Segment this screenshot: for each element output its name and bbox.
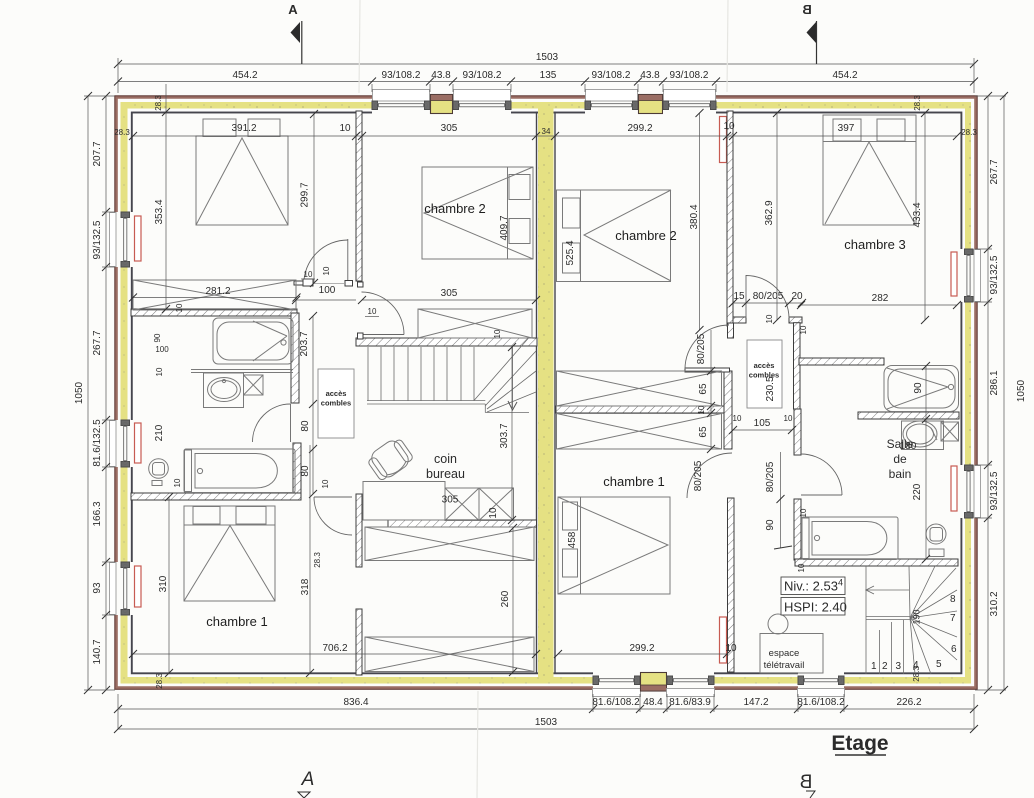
- svg-text:362.9: 362.9: [764, 200, 775, 225]
- svg-text:706.2: 706.2: [322, 643, 347, 654]
- svg-text:454.2: 454.2: [232, 70, 257, 81]
- svg-text:299.2: 299.2: [627, 123, 652, 134]
- svg-text:80: 80: [300, 420, 311, 432]
- svg-text:HSPI: 2.40: HSPI: 2.40: [784, 600, 847, 615]
- svg-text:1050: 1050: [74, 381, 85, 404]
- svg-text:10: 10: [725, 643, 737, 654]
- svg-text:100: 100: [155, 345, 169, 354]
- svg-text:93/108.2: 93/108.2: [382, 70, 421, 81]
- svg-text:80: 80: [300, 465, 311, 477]
- svg-text:90: 90: [153, 333, 162, 342]
- svg-text:espace: espace: [769, 648, 800, 659]
- svg-text:282: 282: [872, 293, 889, 304]
- svg-text:43.8: 43.8: [431, 70, 451, 81]
- svg-text:43.8: 43.8: [640, 70, 660, 81]
- svg-text:267.7: 267.7: [989, 159, 1000, 184]
- svg-text:81.6/83.9: 81.6/83.9: [669, 697, 711, 708]
- svg-text:10: 10: [799, 325, 808, 334]
- svg-text:28.3: 28.3: [155, 673, 164, 689]
- svg-text:65: 65: [698, 426, 709, 438]
- svg-text:2: 2: [882, 661, 888, 672]
- svg-text:190: 190: [912, 609, 922, 624]
- svg-text:210: 210: [154, 424, 165, 441]
- svg-text:65: 65: [698, 383, 709, 395]
- svg-text:80/205: 80/205: [765, 461, 776, 492]
- svg-text:458: 458: [567, 531, 578, 548]
- svg-text:3: 3: [896, 661, 902, 672]
- svg-text:140.7: 140.7: [92, 639, 103, 664]
- svg-text:105: 105: [754, 418, 771, 429]
- svg-text:combles: combles: [321, 399, 351, 408]
- svg-text:147.2: 147.2: [743, 697, 768, 708]
- svg-text:80/205: 80/205: [693, 460, 704, 491]
- svg-text:6: 6: [951, 644, 957, 655]
- svg-text:1503: 1503: [536, 52, 559, 63]
- svg-text:305: 305: [441, 123, 458, 134]
- svg-text:81.6/108.2: 81.6/108.2: [797, 697, 845, 708]
- svg-text:accès: accès: [754, 361, 775, 370]
- svg-text:305: 305: [441, 288, 458, 299]
- svg-text:10: 10: [304, 270, 313, 279]
- svg-text:chambre 2: chambre 2: [615, 228, 676, 243]
- svg-text:93/108.2: 93/108.2: [463, 70, 502, 81]
- svg-text:accès: accès: [326, 389, 347, 398]
- svg-text:chambre 1: chambre 1: [206, 614, 267, 629]
- svg-text:34: 34: [542, 127, 551, 136]
- svg-text:10: 10: [493, 329, 502, 338]
- svg-text:525.4: 525.4: [565, 240, 576, 265]
- svg-text:1: 1: [871, 661, 877, 672]
- svg-text:chambre 2: chambre 2: [424, 201, 485, 216]
- svg-text:93/108.2: 93/108.2: [670, 70, 709, 81]
- svg-text:Salle: Salle: [887, 437, 914, 451]
- svg-text:bureau: bureau: [426, 467, 465, 481]
- svg-text:48.4: 48.4: [643, 697, 663, 708]
- svg-text:90: 90: [913, 382, 924, 394]
- svg-text:380.4: 380.4: [689, 204, 700, 229]
- svg-text:B: B: [802, 2, 811, 17]
- svg-text:80/205: 80/205: [696, 333, 707, 364]
- svg-text:90: 90: [765, 519, 776, 531]
- svg-text:267.7: 267.7: [92, 330, 103, 355]
- svg-text:10: 10: [784, 414, 793, 423]
- svg-text:81.6/108.2: 81.6/108.2: [592, 697, 640, 708]
- svg-text:A: A: [288, 2, 298, 17]
- svg-text:310: 310: [158, 575, 169, 592]
- svg-text:299.7: 299.7: [300, 182, 311, 207]
- svg-text:836.4: 836.4: [343, 697, 368, 708]
- svg-text:de: de: [893, 452, 907, 466]
- svg-text:28.3: 28.3: [313, 552, 322, 568]
- svg-text:260: 260: [500, 590, 511, 607]
- svg-text:28.3: 28.3: [154, 95, 163, 111]
- svg-text:10: 10: [799, 508, 808, 517]
- svg-text:310.2: 310.2: [989, 591, 1000, 616]
- svg-text:10: 10: [797, 563, 806, 572]
- svg-text:28.3: 28.3: [912, 666, 921, 682]
- svg-text:220: 220: [912, 483, 923, 500]
- svg-text:10: 10: [733, 414, 742, 423]
- svg-text:397: 397: [838, 123, 855, 134]
- svg-text:10: 10: [765, 314, 774, 323]
- svg-text:135: 135: [540, 70, 557, 81]
- svg-text:B: B: [800, 772, 813, 793]
- svg-text:28.3: 28.3: [114, 128, 130, 137]
- svg-text:15: 15: [733, 291, 745, 302]
- svg-text:10: 10: [339, 123, 351, 134]
- svg-text:93/132.5: 93/132.5: [989, 471, 1000, 510]
- svg-text:5: 5: [936, 659, 942, 670]
- svg-text:281.2: 281.2: [205, 286, 230, 297]
- svg-text:230.5: 230.5: [765, 376, 776, 401]
- svg-text:391.2: 391.2: [231, 123, 256, 134]
- svg-text:1503: 1503: [535, 717, 558, 728]
- svg-text:81.6/132.5: 81.6/132.5: [92, 419, 103, 467]
- svg-text:166.3: 166.3: [92, 501, 103, 526]
- svg-text:80/205: 80/205: [753, 291, 784, 302]
- svg-text:93: 93: [92, 582, 103, 594]
- svg-text:10: 10: [155, 367, 164, 376]
- svg-text:chambre 3: chambre 3: [844, 237, 905, 252]
- svg-text:Niv.: 2.534: Niv.: 2.534: [784, 578, 843, 594]
- svg-text:207.7: 207.7: [92, 141, 103, 166]
- svg-text:Etage: Etage: [831, 732, 888, 755]
- svg-text:409.7: 409.7: [499, 215, 510, 240]
- svg-text:454.2: 454.2: [832, 70, 857, 81]
- svg-text:10: 10: [723, 121, 735, 132]
- svg-text:chambre 1: chambre 1: [603, 474, 664, 489]
- svg-text:A: A: [301, 769, 315, 790]
- svg-text:100: 100: [319, 285, 336, 296]
- svg-text:10: 10: [322, 266, 331, 275]
- svg-text:203.7: 203.7: [299, 331, 310, 356]
- svg-text:8: 8: [950, 594, 956, 605]
- svg-text:10: 10: [697, 405, 706, 414]
- svg-text:226.2: 226.2: [896, 697, 921, 708]
- svg-text:télétravail: télétravail: [764, 660, 805, 671]
- svg-text:bain: bain: [889, 467, 912, 481]
- svg-text:318: 318: [300, 578, 311, 595]
- svg-text:10: 10: [321, 479, 330, 488]
- svg-text:303.7: 303.7: [499, 423, 510, 448]
- svg-text:1050: 1050: [1016, 379, 1027, 402]
- svg-text:10: 10: [488, 507, 499, 519]
- svg-text:299.2: 299.2: [629, 643, 654, 654]
- svg-text:433.4: 433.4: [912, 202, 923, 227]
- svg-text:coin: coin: [434, 452, 457, 466]
- svg-text:28.3: 28.3: [913, 95, 922, 111]
- svg-text:10: 10: [368, 307, 377, 316]
- svg-text:93/108.2: 93/108.2: [592, 70, 631, 81]
- svg-text:93/132.5: 93/132.5: [989, 255, 1000, 294]
- svg-text:10: 10: [175, 303, 184, 312]
- svg-text:7: 7: [950, 613, 956, 624]
- svg-text:353.4: 353.4: [154, 199, 165, 224]
- svg-text:28.3: 28.3: [961, 128, 977, 137]
- svg-text:93/132.5: 93/132.5: [92, 220, 103, 259]
- svg-text:305: 305: [442, 495, 459, 506]
- svg-text:286.1: 286.1: [989, 370, 1000, 395]
- svg-text:10: 10: [173, 478, 182, 487]
- svg-text:20: 20: [791, 291, 803, 302]
